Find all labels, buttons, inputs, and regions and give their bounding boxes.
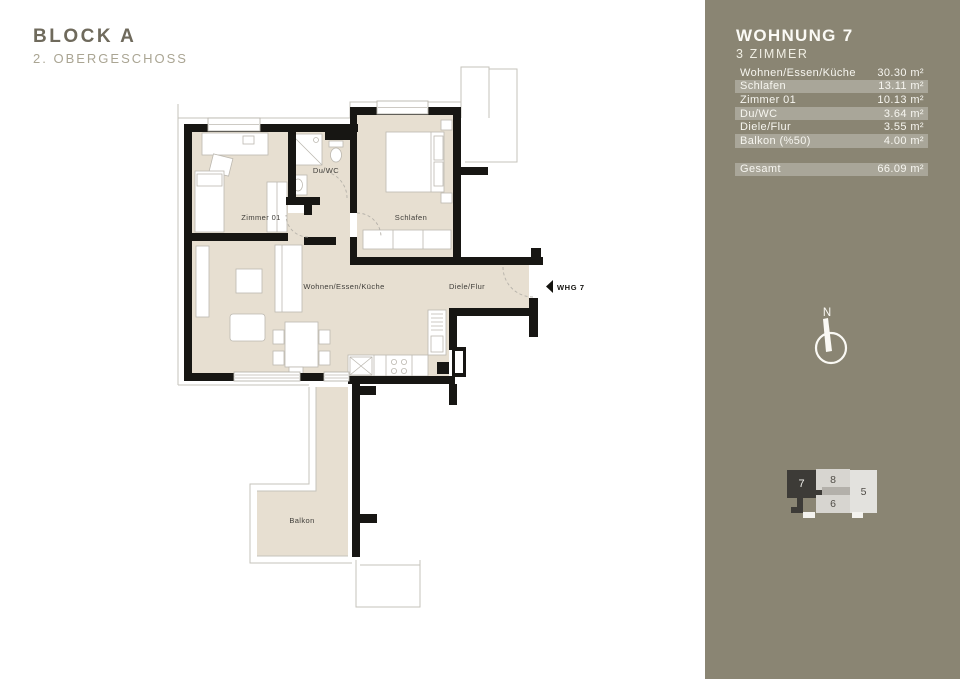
compass-north-label: N xyxy=(823,307,831,319)
room-label-wohnen: Wohnen/Essen/Küche xyxy=(303,282,384,291)
room-label-balkon: Balkon xyxy=(289,516,314,525)
apartment-title: WOHNUNG 7 xyxy=(736,26,853,46)
area-row-label: Zimmer 01 xyxy=(735,94,796,106)
keyplan: 7 8 6 5 xyxy=(785,465,895,525)
area-row-label: Schlafen xyxy=(735,80,786,92)
room-balkon xyxy=(257,387,348,556)
total-row: Gesamt 66.09 m² xyxy=(735,163,928,177)
area-row-label: Wohnen/Essen/Küche xyxy=(735,67,856,79)
keyplan-unit-6: 6 xyxy=(816,495,850,513)
total-label: Gesamt xyxy=(735,163,781,175)
entry-label: WHG 7 xyxy=(557,283,585,292)
area-row: Wohnen/Essen/Küche 30.30 m² xyxy=(735,66,928,80)
entry-opening xyxy=(529,265,537,298)
area-row-value: 13.11 m² xyxy=(878,80,928,92)
page: BLOCK A 2. OBERGESCHOSS xyxy=(0,0,960,679)
compass-icon: N xyxy=(801,303,861,367)
room-label-diele: Diele/Flur xyxy=(449,282,485,291)
room-label-duwc: Du/WC xyxy=(313,166,339,175)
area-table: Wohnen/Essen/Küche 30.30 m² Schlafen 13.… xyxy=(735,66,928,176)
keyplan-unit-5: 5 xyxy=(850,470,877,513)
keyplan-balcony-mark xyxy=(852,512,863,518)
area-row-value: 3.64 m² xyxy=(884,108,928,120)
area-row: Du/WC 3.64 m² xyxy=(735,107,928,121)
area-row: Diele/Flur 3.55 m² xyxy=(735,120,928,134)
apartment-subtitle: 3 ZIMMER xyxy=(736,47,809,61)
area-row-label: Du/WC xyxy=(735,108,777,120)
room-label-zimmer01: Zimmer 01 xyxy=(241,213,280,222)
area-row-label: Diele/Flur xyxy=(735,121,791,133)
area-row: Schlafen 13.11 m² xyxy=(735,80,928,94)
floor-plan: Du/WC Zimmer 01 Schlafen Wohnen/Essen/Kü… xyxy=(0,0,705,679)
area-row: Balkon (%50) 4.00 m² xyxy=(735,134,928,148)
entry-arrow-icon xyxy=(546,280,553,293)
area-row: Zimmer 01 10.13 m² xyxy=(735,93,928,107)
area-row-value: 4.00 m² xyxy=(884,135,928,147)
keyplan-unit-7-foot xyxy=(791,507,803,513)
area-row-value: 10.13 m² xyxy=(877,94,928,106)
total-value: 66.09 m² xyxy=(877,163,928,175)
area-row-value: 30.30 m² xyxy=(877,67,928,79)
area-row-label: Balkon (%50) xyxy=(735,135,811,147)
keyplan-unit-7: 7 xyxy=(787,470,816,498)
room-label-schlafen: Schlafen xyxy=(395,213,427,222)
entry-marker: WHG 7 xyxy=(546,280,585,293)
keyplan-balcony-mark xyxy=(803,512,815,518)
doorway-patch xyxy=(288,213,304,241)
area-row-value: 3.55 m² xyxy=(884,121,928,133)
